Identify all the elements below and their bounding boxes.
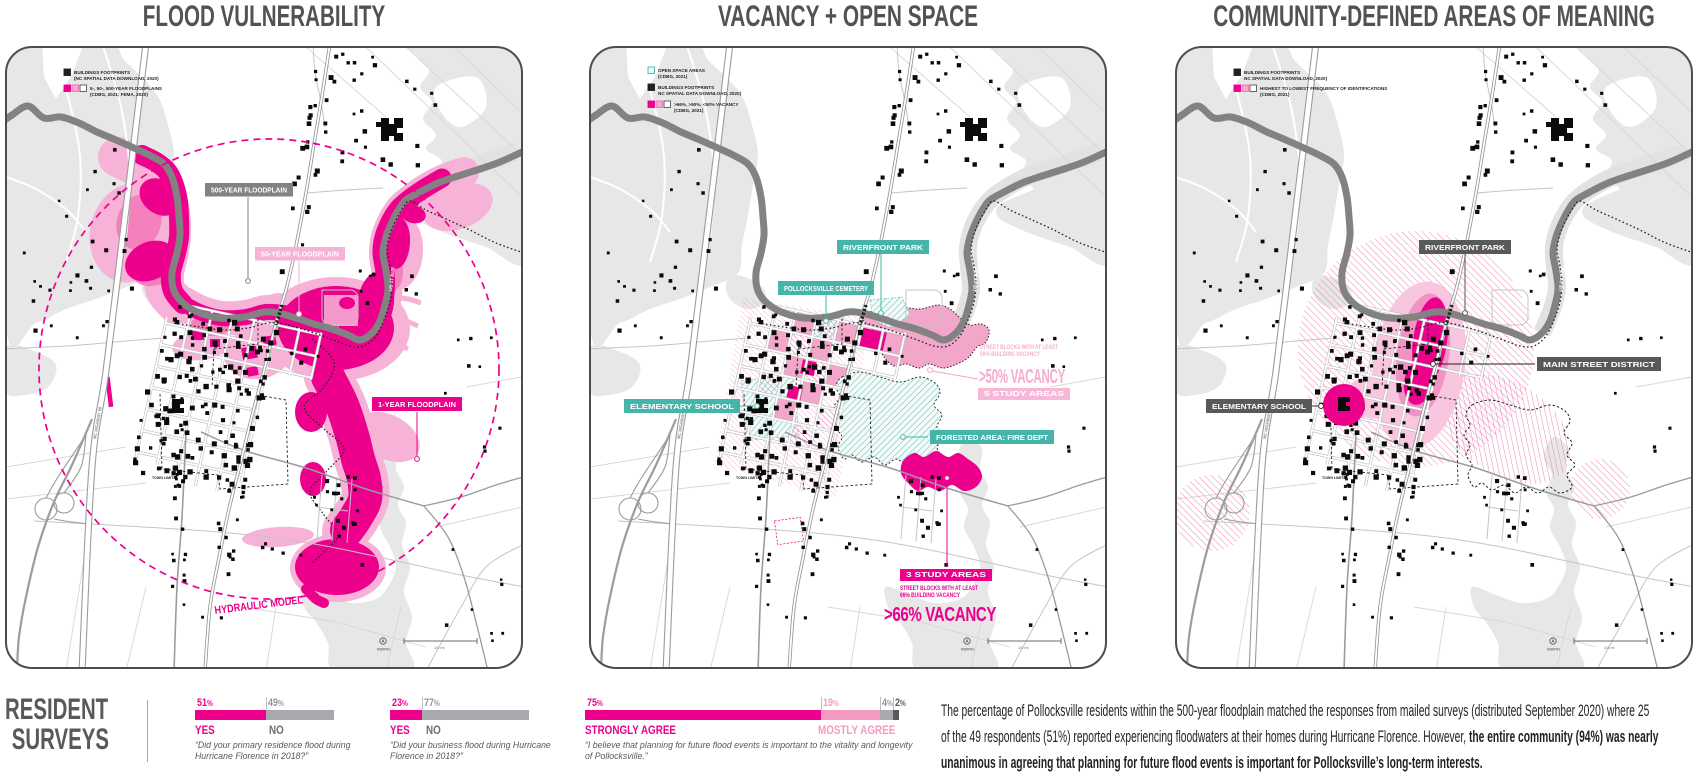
svg-text:OPEN SPACE AREAS: OPEN SPACE AREAS bbox=[658, 68, 705, 73]
svg-text:1/4 mi: 1/4 mi bbox=[434, 646, 444, 650]
svg-text:1-YEAR FLOODPLAIN: 1-YEAR FLOODPLAIN bbox=[378, 400, 456, 409]
svg-text:NC SPATIAL DATA DOWNLOAD, 2020: NC SPATIAL DATA DOWNLOAD, 2020) bbox=[658, 91, 742, 96]
svg-text:BUILDINGS FOOTPRINTS: BUILDINGS FOOTPRINTS bbox=[658, 85, 714, 90]
svg-text:50-YEAR FLOODPLAIN: 50-YEAR FLOODPLAIN bbox=[261, 250, 339, 259]
svg-text:500-YEAR FLOODPLAIN: 500-YEAR FLOODPLAIN bbox=[211, 186, 287, 195]
svg-text:MAIN STREET DISTRICT: MAIN STREET DISTRICT bbox=[1543, 360, 1655, 369]
svg-text:ELEMENTARY SCHOOL: ELEMENTARY SCHOOL bbox=[630, 402, 734, 411]
svg-text:NORTH: NORTH bbox=[1547, 648, 1560, 652]
svg-text:TOWN LIMITS: TOWN LIMITS bbox=[1322, 476, 1346, 480]
svg-text:RIVERFRONT PARK: RIVERFRONT PARK bbox=[1425, 243, 1506, 252]
svg-text:1/4 mi: 1/4 mi bbox=[1018, 646, 1028, 650]
svg-text:(CDBG, 2021): (CDBG, 2021) bbox=[674, 108, 704, 113]
svg-text:STREET BLOCKS WITH AT LEAST: STREET BLOCKS WITH AT LEAST bbox=[900, 585, 978, 592]
svg-text:(CDBG, 2021): (CDBG, 2021) bbox=[1260, 92, 1290, 97]
svg-text:50% BUILDING VACANCY: 50% BUILDING VACANCY bbox=[980, 351, 1041, 358]
svg-text:RIVERFRONT PARK: RIVERFRONT PARK bbox=[843, 243, 924, 252]
svg-text:NC SPATIAL DATA DOWNLOAD, 2020: NC SPATIAL DATA DOWNLOAD, 2020) bbox=[1244, 76, 1328, 81]
svg-text:>50% VACANCY: >50% VACANCY bbox=[979, 366, 1066, 388]
svg-text:(NC SPATIAL DATA DOWNLOAD, 202: (NC SPATIAL DATA DOWNLOAD, 2020) bbox=[74, 76, 159, 81]
svg-text:(CDBG, 2021; FEMA, 2020): (CDBG, 2021; FEMA, 2020) bbox=[90, 92, 148, 97]
svg-text:TOWN LIMITS: TOWN LIMITS bbox=[736, 476, 760, 480]
svg-text:NORTH: NORTH bbox=[961, 648, 974, 652]
svg-text:1/4 mi: 1/4 mi bbox=[1604, 646, 1614, 650]
svg-text:POLLOCKSVILLE CEMETERY: POLLOCKSVILLE CEMETERY bbox=[784, 286, 868, 293]
svg-text:NORTH: NORTH bbox=[377, 648, 390, 652]
svg-text:STREET BLOCKS WITH AT LEAST: STREET BLOCKS WITH AT LEAST bbox=[980, 344, 1058, 351]
svg-text:5-, 50-, 500-YEAR FLOODPLAINS: 5-, 50-, 500-YEAR FLOODPLAINS bbox=[90, 86, 162, 91]
svg-text:HIGHEST TO LOWEST FREQUENCY OF: HIGHEST TO LOWEST FREQUENCY OF IDENTIFIC… bbox=[1260, 86, 1387, 91]
svg-text:(CDBG, 2021): (CDBG, 2021) bbox=[658, 74, 688, 79]
svg-text:3 STUDY AREAS: 3 STUDY AREAS bbox=[906, 570, 986, 579]
svg-text:>66%, >50%, <50% VACANCY: >66%, >50%, <50% VACANCY bbox=[674, 102, 738, 107]
svg-text:BUILDINGS FOOTPRINTS: BUILDINGS FOOTPRINTS bbox=[74, 70, 130, 75]
svg-text:BUILDINGS FOOTPRINTS: BUILDINGS FOOTPRINTS bbox=[1244, 70, 1300, 75]
svg-text:5 STUDY AREAS: 5 STUDY AREAS bbox=[984, 389, 1064, 398]
svg-text:FORESTED AREA: FIRE DEPT: FORESTED AREA: FIRE DEPT bbox=[936, 433, 1048, 442]
svg-text:ELEMENTARY SCHOOL: ELEMENTARY SCHOOL bbox=[1212, 402, 1306, 411]
svg-text:>66% VACANCY: >66% VACANCY bbox=[884, 604, 997, 626]
svg-text:TOWN LIMITS: TOWN LIMITS bbox=[152, 476, 176, 480]
svg-text:66% BUILDING VACANCY: 66% BUILDING VACANCY bbox=[900, 592, 961, 599]
